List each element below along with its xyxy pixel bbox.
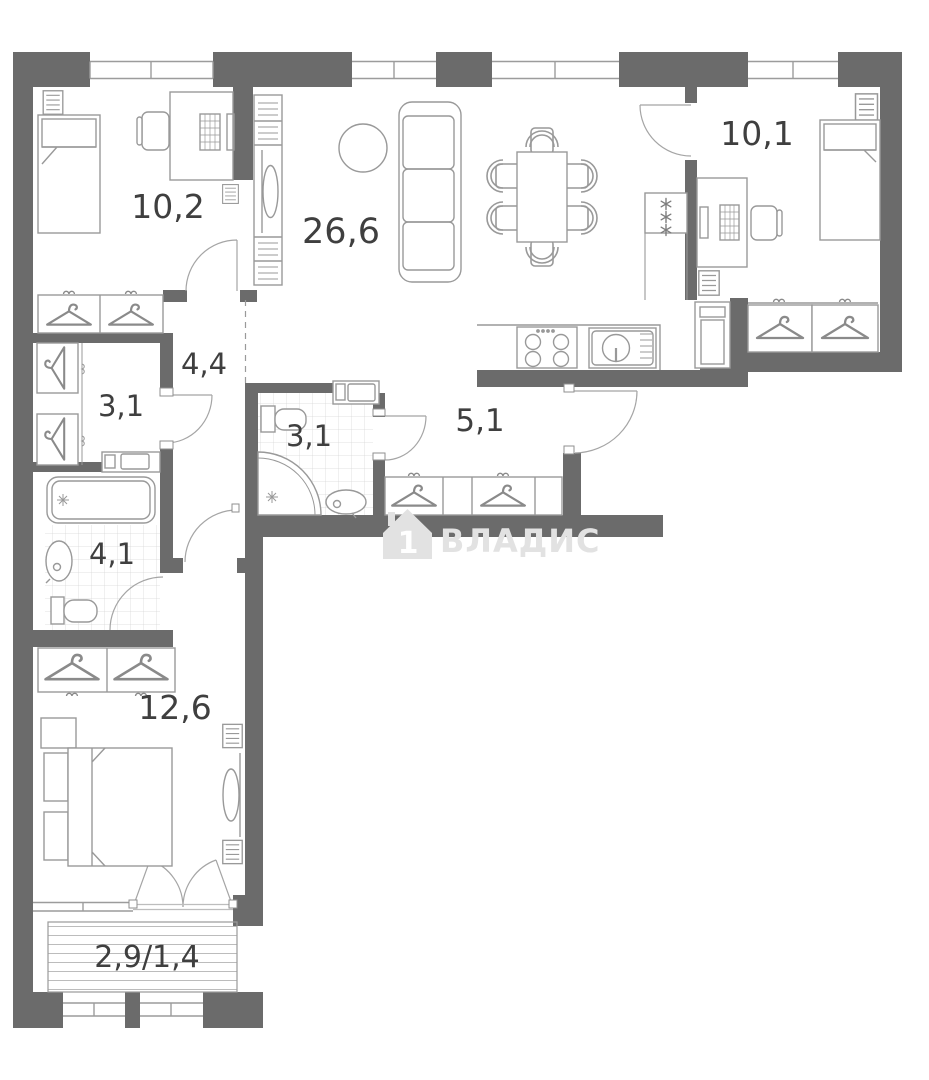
label-living-room: 26,6 xyxy=(302,212,380,252)
room-living-kitchen xyxy=(254,95,597,285)
label-bedroom-bottom: 12,6 xyxy=(138,688,211,727)
room-bedroom-bottom xyxy=(38,648,242,866)
corridor-wardrobe xyxy=(385,473,562,515)
label-bathroom-middle: 3,1 xyxy=(286,419,332,453)
label-balcony: 2,9/1,4 xyxy=(94,940,200,975)
label-corridor: 5,1 xyxy=(455,403,504,439)
label-hallway: 4,4 xyxy=(181,347,227,381)
hall-closet xyxy=(37,343,84,465)
floor-plan-page: 10,2 26,6 10,1 4,4 3,1 3,1 5,1 4,1 12,6 … xyxy=(0,0,929,1080)
label-wardrobe-closet: 3,1 xyxy=(98,389,144,423)
label-bedroom-top-right: 10,1 xyxy=(720,114,793,153)
label-bathroom-left: 4,1 xyxy=(89,537,135,571)
label-bedroom-top-left: 10,2 xyxy=(131,187,204,226)
watermark-icon-digit: 1 xyxy=(398,526,419,561)
floor-plan: 10,2 26,6 10,1 4,4 3,1 3,1 5,1 4,1 12,6 … xyxy=(0,0,929,1080)
watermark-brand: ВЛАДИС xyxy=(440,522,601,560)
